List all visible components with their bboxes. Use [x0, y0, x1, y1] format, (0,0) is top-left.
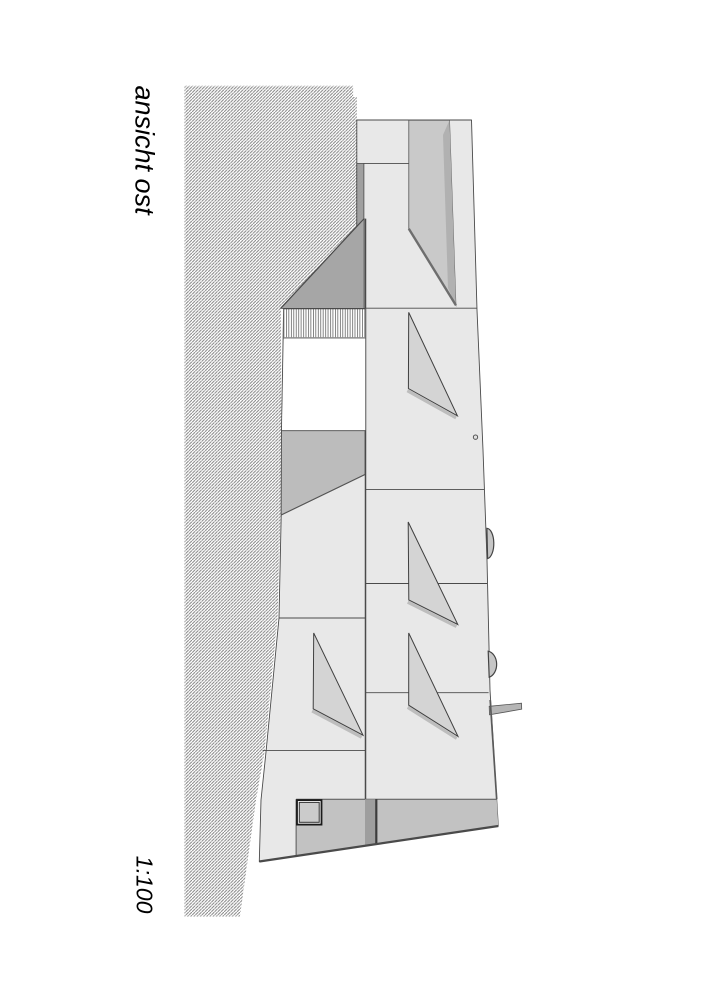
svg-text:1:100: 1:100	[132, 856, 158, 914]
svg-text:ansicht ost: ansicht ost	[130, 86, 160, 217]
